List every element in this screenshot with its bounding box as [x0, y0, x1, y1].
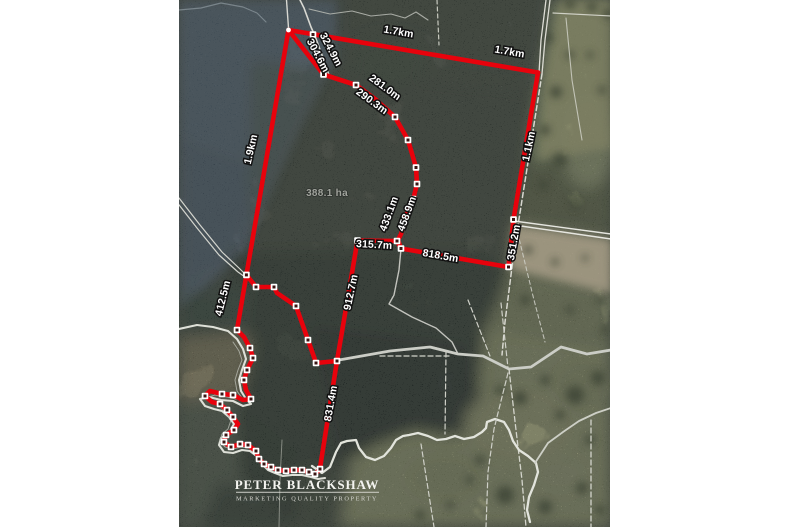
svg-text:315.7m: 315.7m: [356, 238, 393, 252]
svg-text:PETER BLACKSHAW: PETER BLACKSHAW: [235, 477, 380, 492]
svg-text:MARKETING QUALITY PROPERTY: MARKETING QUALITY PROPERTY: [236, 496, 378, 503]
svg-text:388.1 ha: 388.1 ha: [306, 188, 348, 199]
